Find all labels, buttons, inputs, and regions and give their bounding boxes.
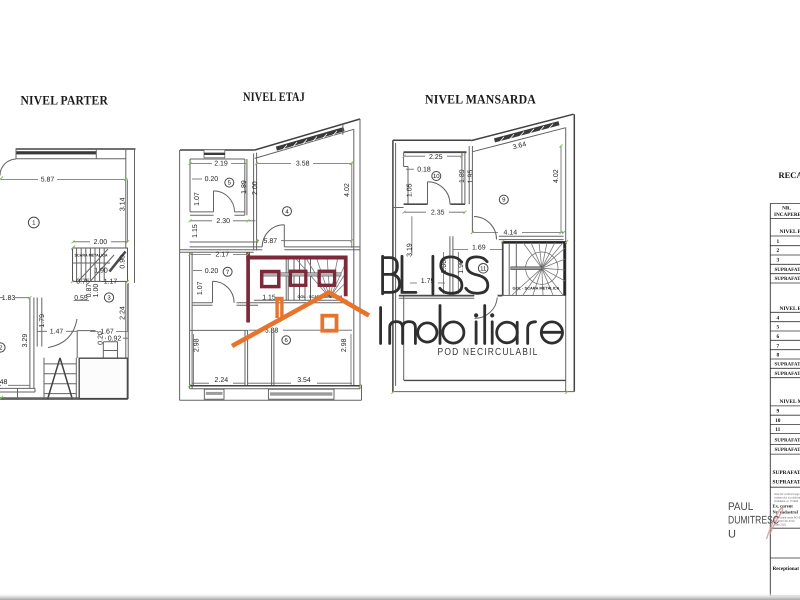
svg-text:1.83: 1.83: [2, 295, 16, 302]
svg-text:3.58: 3.58: [296, 161, 310, 168]
svg-text:7: 7: [776, 343, 779, 349]
svg-text:INCAPERE: INCAPERE: [774, 212, 800, 218]
svg-text:0.55: 0.55: [74, 295, 88, 302]
svg-text:NIVEL PARTER: NIVEL PARTER: [780, 229, 800, 235]
svg-text:U: U: [728, 528, 736, 540]
svg-text:RECAPITULATIE: RECAPITULATIE: [779, 170, 800, 180]
svg-text:NIVEL MANSARDA: NIVEL MANSARDA: [780, 399, 800, 405]
svg-text:3.19: 3.19: [407, 243, 414, 257]
svg-text:1.05: 1.05: [407, 183, 414, 197]
svg-text:0.20: 0.20: [205, 176, 219, 183]
svg-text:2.19: 2.19: [214, 161, 228, 168]
svg-text:2: 2: [776, 248, 779, 254]
svg-text:SUPRAFATA: SUPRAFATA: [775, 276, 800, 282]
svg-text:10: 10: [775, 418, 781, 424]
svg-text:4: 4: [776, 315, 779, 321]
svg-text:2.00: 2.00: [94, 239, 108, 246]
svg-text:SUPRAFATA: SUPRAFATA: [775, 267, 800, 273]
svg-text:3.54: 3.54: [297, 377, 311, 384]
svg-text:4.02: 4.02: [553, 169, 560, 183]
svg-text:5.87: 5.87: [41, 177, 55, 184]
svg-text:11: 11: [775, 427, 780, 433]
svg-text:9: 9: [776, 409, 779, 415]
svg-text:SUPRAFATA: SUPRAFATA: [775, 371, 800, 377]
svg-text:4.14: 4.14: [503, 230, 517, 237]
svg-text:1: 1: [776, 239, 779, 245]
svg-text:Receptionat: Receptionat: [773, 566, 800, 572]
svg-text:1.15: 1.15: [192, 224, 199, 238]
svg-text:3.14: 3.14: [120, 197, 127, 211]
svg-text:2.35: 2.35: [431, 209, 445, 216]
svg-text:SUPRAFATA: SUPRAFATA: [775, 438, 800, 444]
svg-text:2.24: 2.24: [214, 377, 228, 384]
svg-text:3.64: 3.64: [512, 141, 527, 151]
svg-text:1.95: 1.95: [468, 170, 475, 184]
svg-text:SCARA METALICA: SCARA METALICA: [75, 254, 108, 258]
svg-text:NIVEL ETAJ: NIVEL ETAJ: [243, 89, 305, 104]
svg-text:1.17: 1.17: [104, 279, 118, 286]
svg-text:SUPRAFATA: SUPRAFATA: [775, 362, 800, 368]
svg-text:1.07: 1.07: [194, 192, 201, 206]
svg-text:2.98: 2.98: [194, 338, 201, 352]
svg-text:1.89: 1.89: [241, 180, 248, 194]
svg-text:2.24: 2.24: [120, 306, 127, 320]
svg-text:1.90: 1.90: [94, 268, 108, 275]
svg-text:10: 10: [433, 173, 440, 180]
svg-text:2.17: 2.17: [215, 252, 229, 259]
svg-text:POD NECIRCULABIL: POD NECIRCULABIL: [438, 347, 539, 358]
svg-text:0.18: 0.18: [417, 167, 431, 174]
svg-text:NIVEL MANSARDA: NIVEL MANSARDA: [425, 92, 536, 107]
svg-text:2.98: 2.98: [341, 338, 348, 352]
svg-text:1.47: 1.47: [50, 329, 64, 336]
svg-text:1.15: 1.15: [262, 295, 276, 302]
svg-text:NIVEL ETAJ: NIVEL ETAJ: [780, 306, 800, 312]
svg-text:1.00: 1.00: [93, 284, 100, 298]
svg-text:1.69: 1.69: [472, 245, 486, 252]
svg-text:8: 8: [776, 353, 779, 359]
svg-text:1.79: 1.79: [39, 314, 46, 328]
svg-text:PAUL: PAUL: [728, 501, 753, 513]
svg-text:0.90: 0.90: [119, 255, 126, 269]
svg-text:48: 48: [0, 379, 7, 386]
svg-text:3: 3: [776, 258, 779, 264]
svg-text:3.29: 3.29: [22, 334, 29, 348]
svg-text:2.25: 2.25: [429, 154, 443, 161]
svg-text:DUMITRESC: DUMITRESC: [728, 515, 779, 527]
svg-text:SUPRAFATA: SUPRAFATA: [775, 447, 800, 453]
svg-text:4.02: 4.02: [344, 183, 351, 197]
svg-text:NR.: NR.: [782, 206, 791, 212]
svg-text:SUPRAFATA UTILA: SUPRAFATA UTILA: [773, 470, 800, 476]
svg-text:imobiliare nr. 7/1996: imobiliare nr. 7/1996: [774, 500, 799, 503]
svg-text:1.07: 1.07: [197, 281, 204, 295]
svg-text:NIVEL PARTER: NIVEL PARTER: [21, 93, 109, 108]
svg-text:11: 11: [480, 265, 487, 272]
svg-text:2.00: 2.00: [252, 181, 259, 195]
svg-text:GOL - SCARA METALICA: GOL - SCARA METALICA: [513, 286, 560, 290]
svg-text:SUPRAFATA CONSTR: SUPRAFATA CONSTR: [773, 479, 800, 485]
svg-text:0.20: 0.20: [205, 268, 219, 275]
svg-text:6: 6: [776, 334, 779, 340]
svg-text:2.30: 2.30: [216, 218, 230, 225]
svg-text:5.87: 5.87: [263, 238, 277, 245]
svg-text:5: 5: [776, 325, 779, 331]
